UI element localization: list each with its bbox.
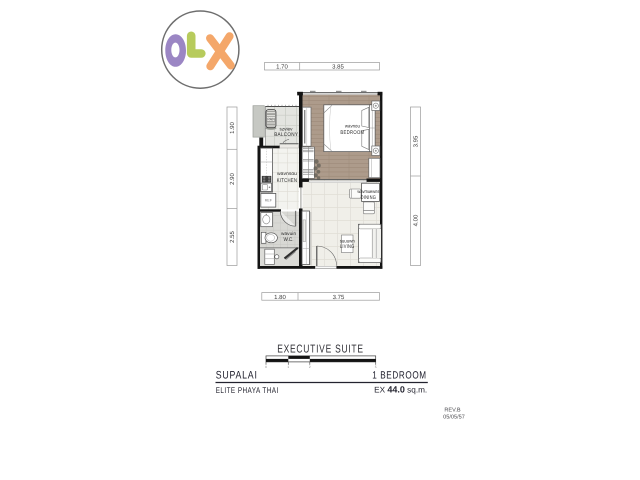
svg-text:1.80: 1.80 xyxy=(274,294,286,301)
svg-text:PAN: PAN xyxy=(267,117,275,121)
svg-text:REF: REF xyxy=(265,199,273,203)
svg-text:3.75: 3.75 xyxy=(333,294,345,301)
svg-text:SUPALAI: SUPALAI xyxy=(216,369,258,381)
svg-text:wavnou: wavnou xyxy=(345,124,360,129)
svg-text:0: 0 xyxy=(265,365,267,369)
svg-text:1.90: 1.90 xyxy=(229,122,236,134)
svg-text:BALCONY: BALCONY xyxy=(274,132,298,138)
svg-text:1 BEDROOM: 1 BEDROOM xyxy=(372,369,427,381)
svg-text:W.C.: W.C. xyxy=(284,237,294,243)
svg-text:2: 2 xyxy=(309,365,311,369)
svg-text:BEDROOM: BEDROOM xyxy=(340,130,364,136)
svg-text:2.55: 2.55 xyxy=(229,231,236,243)
svg-text:2.90: 2.90 xyxy=(229,173,236,185)
svg-text:3.95: 3.95 xyxy=(413,135,420,147)
svg-text:4.00: 4.00 xyxy=(413,214,420,226)
svg-text:REV.B: REV.B xyxy=(444,408,461,414)
svg-text:KITCHEN: KITCHEN xyxy=(277,178,298,184)
svg-text:1: 1 xyxy=(287,365,289,369)
svg-text:ELITE PHAYA THAI: ELITE PHAYA THAI xyxy=(216,385,279,395)
svg-text:EX 44.0 sq.m.: EX 44.0 sq.m. xyxy=(374,385,427,395)
svg-text:EXECUTIVE SUITE: EXECUTIVE SUITE xyxy=(277,343,364,355)
svg-text:wavnsou: wavnsou xyxy=(277,172,297,177)
svg-text:3.85: 3.85 xyxy=(332,64,344,71)
svg-text:LIVING: LIVING xyxy=(340,244,355,250)
svg-text:1.70: 1.70 xyxy=(276,64,288,71)
svg-text:5: 5 xyxy=(375,365,377,369)
svg-text:05/05/57: 05/05/57 xyxy=(443,413,465,420)
svg-text:DINING: DINING xyxy=(361,195,377,201)
